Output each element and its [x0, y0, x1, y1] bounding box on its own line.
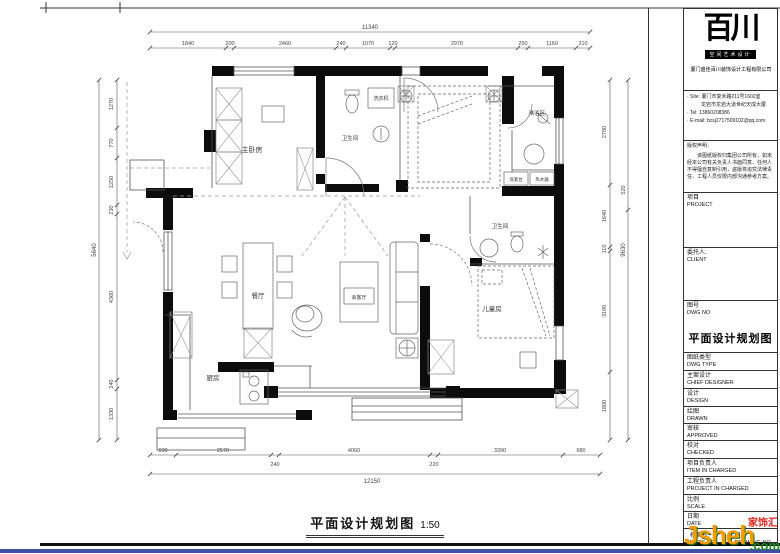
- label-kids-room: 儿童房: [482, 304, 502, 313]
- field-client-en: CLIENT: [687, 257, 774, 263]
- dim: 520: [621, 185, 627, 194]
- field-item-en: ITEM IN CHARGED: [687, 468, 774, 474]
- dim: 240: [109, 379, 115, 388]
- dim: 690: [158, 448, 167, 454]
- field-chief-en: CHIEF DESIGNER: [687, 380, 774, 386]
- watermark-site-suffix: .com: [750, 538, 780, 553]
- dim: 310: [578, 41, 587, 47]
- cabinet-hatches: [170, 86, 578, 408]
- dim: 1800: [602, 400, 608, 412]
- dim: 1270: [109, 98, 115, 110]
- contact-cell: · Site: 厦门市复禾路211号1602室 龙岩市龙岩大道世纪天成大厦 · …: [684, 91, 777, 141]
- watermark-site: Jsheh: [684, 520, 754, 551]
- coffee-table: [340, 262, 378, 322]
- nightstand: [520, 352, 536, 368]
- bed-kids: [478, 266, 554, 338]
- label-shower: 淋浴区: [529, 109, 546, 117]
- project-in-charge-cell: 工程负责人 PROJECT IN CHARGED: [684, 477, 777, 495]
- dim: 250: [518, 41, 527, 47]
- dim-right-total: 9630: [621, 243, 627, 257]
- label-cabinet2: 热水器: [535, 176, 549, 183]
- field-pic-zh: 工程负责人: [687, 479, 774, 486]
- shower-fixtures: [524, 112, 550, 164]
- plan-caption: 平面设计规划图1:50: [280, 513, 470, 538]
- dim: 110: [602, 245, 608, 254]
- dwg-no-cell: 图号 DWG NO 平面设计规划图: [684, 301, 777, 353]
- dim-text-top: 11340 1840 200 2460 240 1070 120 2970 25…: [182, 25, 588, 47]
- walls: [146, 66, 566, 420]
- field-approved-en: APPROVED: [687, 433, 774, 439]
- field-drawn-zh: 绘图: [687, 409, 774, 416]
- dim: 1330: [109, 408, 115, 420]
- sheet-border: [40, 2, 780, 13]
- caption-title: 平面设计规划图: [310, 516, 415, 531]
- field-approved-zh: 审核: [687, 426, 774, 433]
- dim-top-total: 11340: [362, 25, 379, 31]
- drawing-title: 平面设计规划图: [687, 330, 774, 346]
- scale-cell: 比例 SCALE: [684, 495, 777, 512]
- client-cell: 委托人: CLIENT: [684, 248, 777, 301]
- field-pic-en: PROJECT IN CHARGED: [687, 486, 774, 492]
- copyright-cell: 版权声明： 该图纸版权归集团公司所有，如未经本公司有关负责人书面同意，任何人不得…: [684, 141, 777, 193]
- dim: 770: [109, 138, 115, 147]
- field-client-zh: 委托人:: [687, 250, 774, 257]
- contact-tel: · Tel: 13860208386: [687, 109, 774, 117]
- field-scale-en: SCALE: [687, 504, 774, 510]
- dim: 2970: [451, 41, 463, 47]
- dim: 2460: [279, 41, 291, 47]
- dim: 4360: [109, 291, 115, 303]
- dim-lines: [99, 32, 628, 474]
- dim: 2570: [217, 448, 229, 454]
- dim: 220: [429, 462, 438, 468]
- tv-box: [262, 106, 284, 122]
- room-labels: 主卧房 卫生间 洗衣机 淋浴区 洗漱台 热水器 卫生间 儿童房 会客厅 餐厅 厨…: [207, 95, 550, 382]
- drawn-cell: 绘图 DRAWN: [684, 407, 777, 424]
- bath2-fixtures: [480, 232, 548, 259]
- dim: 240: [336, 41, 345, 47]
- dim: 3390: [494, 448, 506, 454]
- label-dining: 餐厅: [252, 291, 266, 300]
- design-cell: 设计 DESIGN: [684, 389, 777, 407]
- field-dwgno-zh: 图号: [687, 303, 774, 310]
- chief-designer-cell: 主案设计 CHIEF DESIGNER: [684, 371, 777, 389]
- drawing-sheet: 主卧房 卫生间 洗衣机 淋浴区 洗漱台 热水器 卫生间 儿童房 会客厅 餐厅 厨…: [0, 0, 780, 554]
- dim: 1840: [182, 41, 194, 47]
- field-dwgno-en: DWG NO: [687, 310, 774, 316]
- dim: 3190: [602, 305, 608, 317]
- dim-bottom-total: 12150: [364, 479, 381, 485]
- dim: 120: [388, 41, 397, 47]
- field-drawn-en: DRAWN: [687, 416, 774, 422]
- company-logo: 百川: [687, 15, 774, 43]
- dim: 1640: [602, 210, 608, 222]
- dim: 980: [576, 448, 585, 454]
- field-checked-zh: 校对: [687, 443, 774, 450]
- bottom-border-line: [40, 543, 780, 546]
- stove: [240, 370, 268, 404]
- logo-cell: 百川 空间艺术设计 厦门盛佳百川装饰设计工程有限公司: [684, 9, 777, 91]
- copyright-title: 版权声明：: [687, 143, 774, 150]
- field-dwgtype-zh: 图纸类型: [687, 355, 774, 362]
- field-project-en: PROJECT: [687, 202, 774, 208]
- field-checked-en: CHECKED: [687, 450, 774, 456]
- guide-lines: [123, 82, 420, 259]
- floor-plan-canvas: 主卧房 卫生间 洗衣机 淋浴区 洗漱台 热水器 卫生间 儿童房 会客厅 餐厅 厨…: [0, 0, 780, 554]
- dim: 1250: [109, 176, 115, 188]
- dim: 230: [109, 205, 115, 214]
- copyright-body: 该图纸版权归集团公司所有，如未经本公司有关负责人书面同意，任何人不得擅自复制引用…: [687, 153, 774, 181]
- label-kitchen: 厨房: [207, 373, 220, 382]
- approved-cell: 审核 APPROVED: [684, 424, 777, 441]
- dining-set: [222, 243, 292, 329]
- dim: 4060: [348, 448, 360, 454]
- dim: 200: [225, 41, 234, 47]
- label-bath2: 卫生间: [492, 222, 509, 230]
- field-design-zh: 设计: [687, 391, 774, 398]
- panel-divider-rule: [648, 8, 649, 544]
- field-scale-zh: 比例: [687, 497, 774, 504]
- armchair: [292, 305, 322, 337]
- field-design-en: DESIGN: [687, 398, 774, 404]
- sofa: [390, 242, 418, 334]
- field-item-zh: 项目负责人: [687, 461, 774, 468]
- title-block: 百川 空间艺术设计 厦门盛佳百川装饰设计工程有限公司 · Site: 厦门市复禾…: [683, 8, 778, 543]
- watermark: 家饰汇 Jsheh .com: [682, 512, 780, 554]
- label-master-bedroom: 主卧房: [242, 145, 263, 154]
- field-project-zh: 项目: [687, 195, 774, 202]
- checked-cell: 校对 CHECKED: [684, 441, 777, 459]
- label-cabinet1: 洗漱台: [509, 176, 523, 183]
- label-living: 会客厅: [351, 294, 366, 301]
- label-bath1: 卫生间: [342, 134, 359, 142]
- caption-scale: 1:50: [420, 520, 439, 531]
- contact-site2: 龙岩市龙岩大道世纪天成大厦: [687, 101, 774, 109]
- label-washer: 洗衣机: [373, 95, 388, 102]
- company-name: 厦门盛佳百川装饰设计工程有限公司: [690, 65, 770, 72]
- dwg-type-cell: 图纸类型 DWG TYPE: [684, 353, 777, 371]
- dim: 240: [270, 462, 279, 468]
- field-chief-zh: 主案设计: [687, 373, 774, 380]
- dim-text-bottom: 690 2570 4060 3390 980 240 220 12150: [158, 448, 585, 485]
- bottom-accent-line: [0, 549, 780, 553]
- dim: 1070: [362, 41, 374, 47]
- field-dwgtype-en: DWG TYPE: [687, 362, 774, 368]
- contact-email: · E-mail: bcsj2717509102@qq.com: [687, 117, 774, 125]
- dim-left-total: 5640: [92, 243, 98, 257]
- logo-tagline: 空间艺术设计: [705, 50, 755, 59]
- dim-text-left: 1270 770 1250 230 4360 240 1330 5640: [92, 98, 115, 420]
- item-in-charge-cell: 项目负责人 ITEM IN CHARGED: [684, 459, 777, 477]
- dim: 1160: [546, 41, 558, 47]
- project-cell: 项目 PROJECT: [684, 193, 777, 248]
- dim-text-right: 2780 1640 110 3190 1800 520 9630: [602, 126, 627, 412]
- contact-site1: · Site: 厦门市复禾路211号1602室: [687, 93, 774, 101]
- dim: 2780: [602, 126, 608, 138]
- ceiling-light: [396, 338, 418, 358]
